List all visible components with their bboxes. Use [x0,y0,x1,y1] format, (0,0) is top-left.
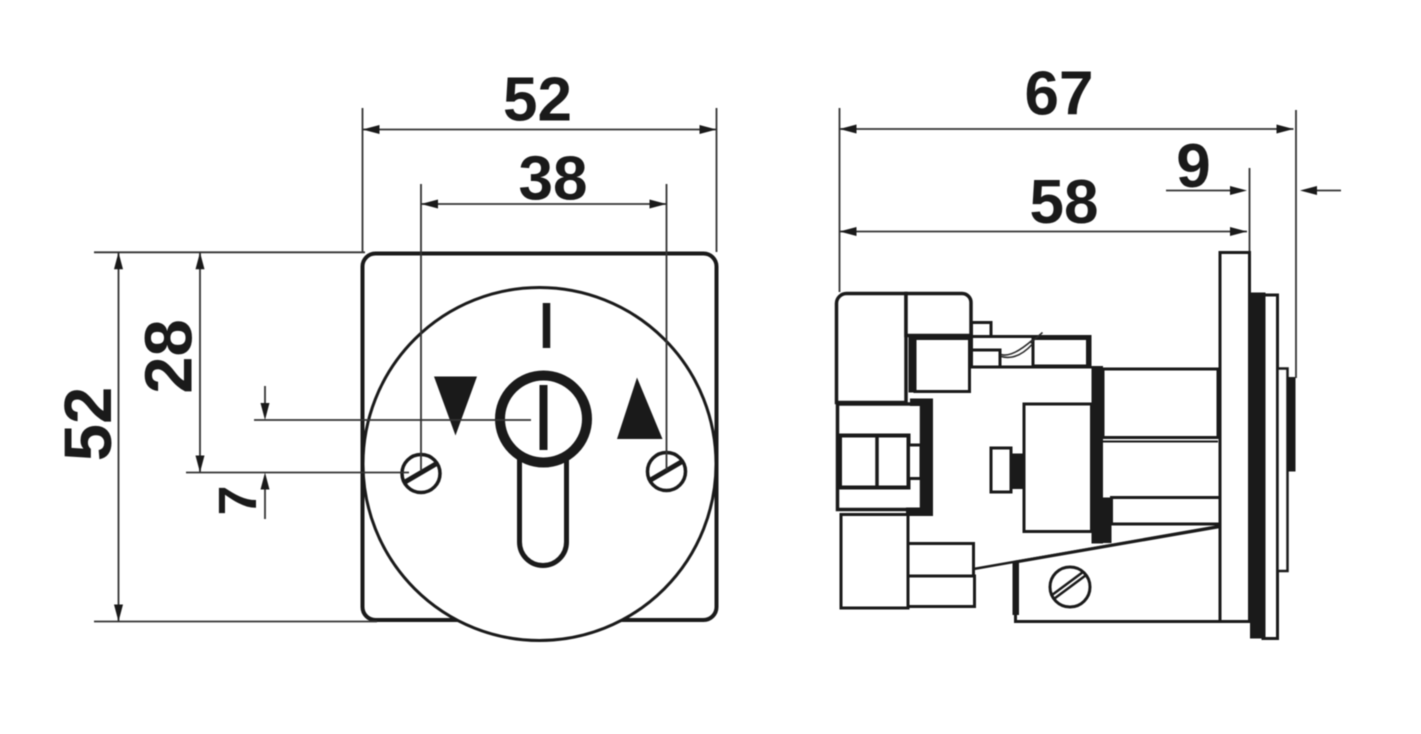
svg-text:38: 38 [519,145,588,214]
svg-text:58: 58 [1030,168,1099,237]
svg-text:7: 7 [208,485,268,515]
svg-text:9: 9 [1176,132,1210,201]
svg-text:28: 28 [132,319,207,394]
svg-text:52: 52 [503,66,572,135]
svg-text:52: 52 [51,387,126,462]
svg-text:67: 67 [1025,60,1094,129]
